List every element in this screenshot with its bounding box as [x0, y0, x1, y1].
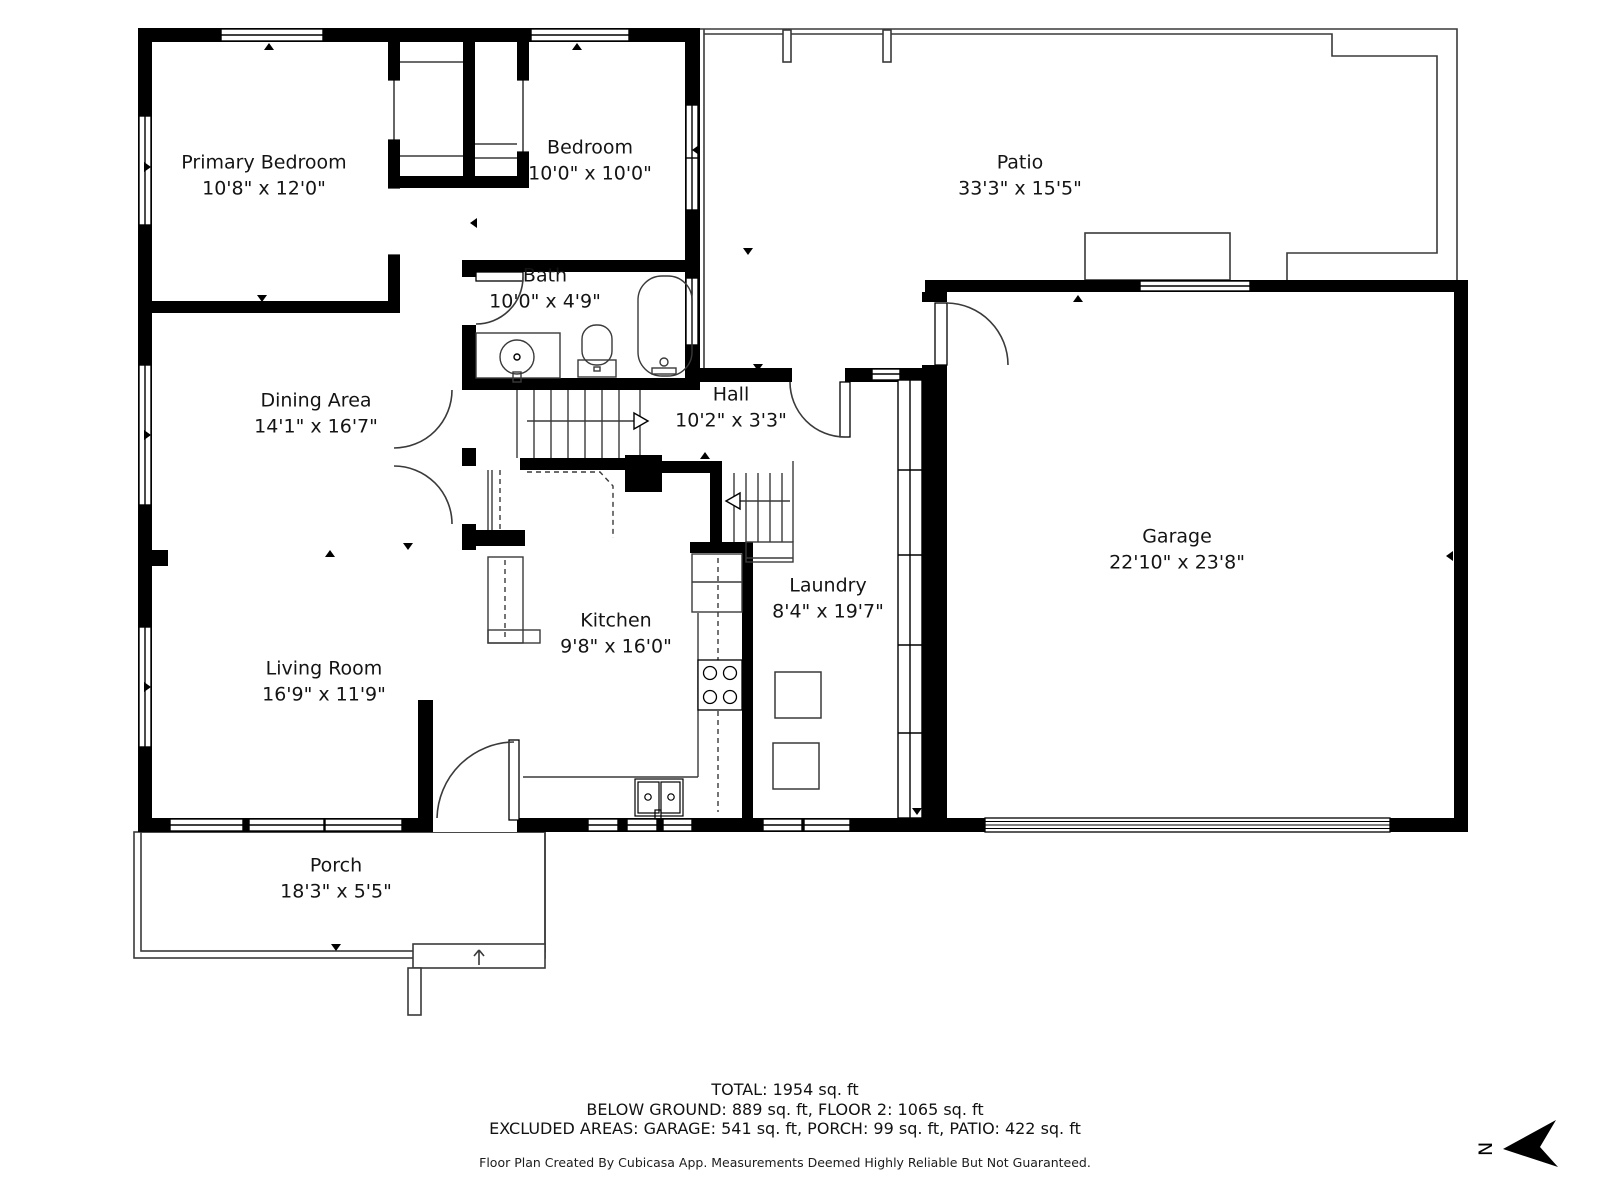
room-label-bedroom: Bedroom 10'0" x 10'0" — [528, 135, 652, 186]
dryer-icon — [773, 743, 819, 789]
total-area-text: TOTAL: 1954 sq. ft — [0, 1080, 1570, 1100]
patio-door — [790, 382, 850, 437]
laundry-appliances — [773, 672, 821, 789]
room-label-dining-area: Dining Area 14'1" x 16'7" — [254, 388, 378, 439]
stove-icon — [698, 660, 742, 710]
door-gaps — [433, 818, 517, 832]
disclaimer-text: Floor Plan Created By Cubicasa App. Meas… — [0, 1155, 1570, 1170]
kitchen-sink-icon — [635, 779, 683, 819]
garage-entry-door — [935, 303, 1008, 365]
washer-icon — [775, 672, 821, 718]
toilet-icon — [578, 325, 616, 377]
dining-door-upper — [394, 390, 452, 448]
garage-door — [985, 818, 1390, 832]
room-label-kitchen: Kitchen 9'8" x 16'0" — [560, 608, 672, 659]
vanity-sink-icon — [476, 333, 560, 382]
room-label-laundry: Laundry 8'4" x 19'7" — [772, 573, 884, 624]
stairs-up — [517, 390, 648, 458]
front-door — [437, 740, 519, 820]
room-label-primary-bedroom: Primary Bedroom 10'8" x 12'0" — [181, 150, 346, 201]
room-label-porch: Porch 18'3" x 5'5" — [280, 853, 392, 904]
room-label-patio: Patio 33'3" x 15'5" — [958, 150, 1082, 201]
room-label-bath: Bath 10'0" x 4'9" — [489, 263, 601, 314]
bathtub-icon — [638, 276, 692, 376]
excluded-area-text: EXCLUDED AREAS: GARAGE: 541 sq. ft, PORC… — [0, 1119, 1570, 1139]
laundry-window-band — [898, 380, 922, 818]
room-label-garage: Garage 22'10" x 23'8" — [1109, 524, 1245, 575]
closet-shelves — [400, 62, 517, 158]
room-label-hall: Hall 10'2" x 3'3" — [675, 382, 787, 433]
room-label-living-room: Living Room 16'9" x 11'9" — [262, 656, 386, 707]
floorplan-page: N Primary Bedroom 10'8" x 12'0" Bedroom … — [0, 0, 1600, 1200]
summary-footer: TOTAL: 1954 sq. ft BELOW GROUND: 889 sq.… — [0, 1080, 1570, 1170]
dining-door-lower — [394, 466, 452, 524]
floors-area-text: BELOW GROUND: 889 sq. ft, FLOOR 2: 1065 … — [0, 1100, 1570, 1120]
